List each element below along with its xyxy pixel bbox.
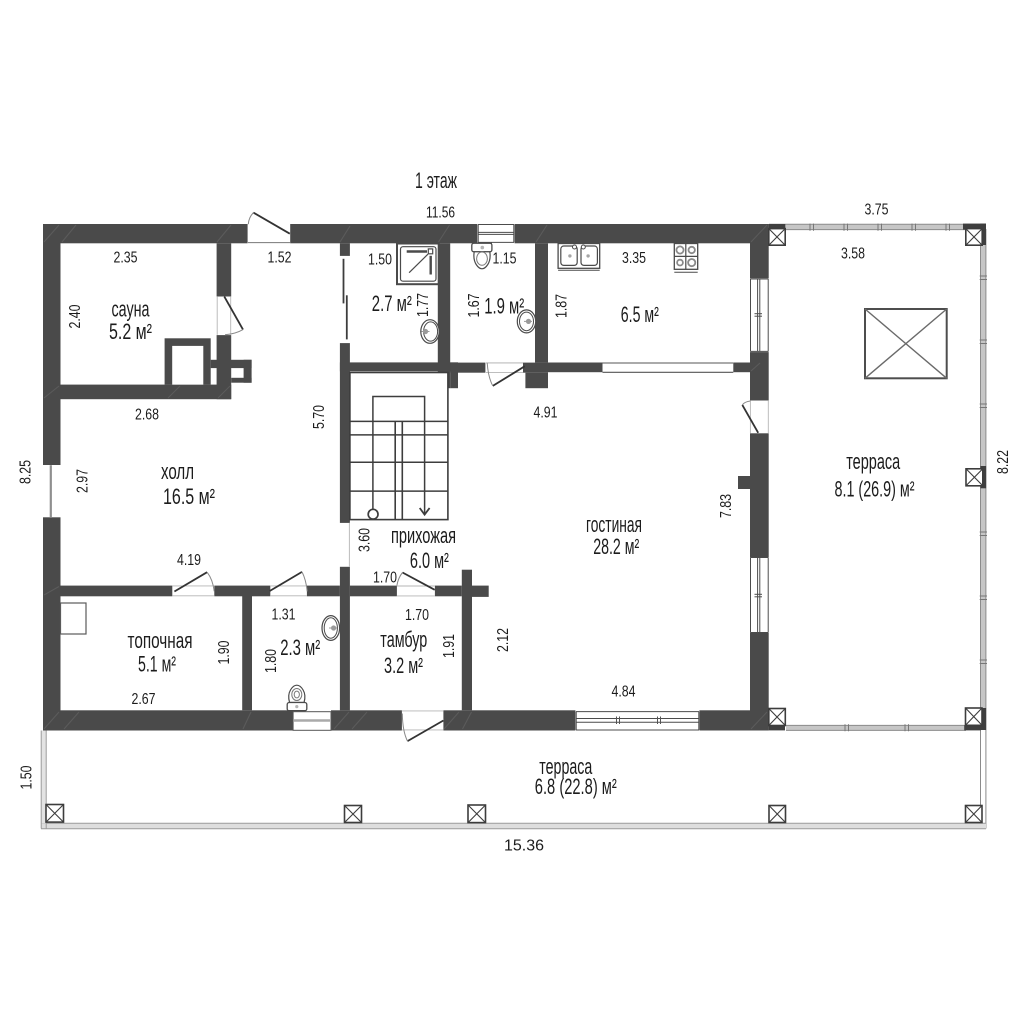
svg-text:3.2 м²: 3.2 м² [384,653,423,678]
svg-text:6.0 м²: 6.0 м² [410,548,449,573]
svg-text:1.77: 1.77 [415,293,432,317]
svg-text:1.50: 1.50 [368,252,392,269]
svg-text:прихожая: прихожая [391,523,456,548]
svg-text:1.90: 1.90 [216,640,233,664]
svg-text:2.67: 2.67 [132,691,156,708]
svg-text:8.1 (26.9) м²: 8.1 (26.9) м² [835,477,915,502]
svg-text:2.3 м²: 2.3 м² [280,635,320,660]
svg-text:4.19: 4.19 [177,552,201,569]
svg-text:5.70: 5.70 [311,405,328,429]
svg-text:4.91: 4.91 [534,405,558,422]
svg-text:2.35: 2.35 [114,250,138,267]
svg-text:топочная: топочная [128,628,193,653]
svg-text:тамбур: тамбур [380,627,427,652]
svg-text:4.84: 4.84 [612,684,636,701]
svg-text:2.97: 2.97 [75,469,92,493]
svg-text:1.70: 1.70 [373,570,397,587]
svg-text:8.22: 8.22 [995,450,1012,474]
svg-text:1.87: 1.87 [554,294,571,318]
svg-text:3.60: 3.60 [357,528,374,552]
svg-text:8.25: 8.25 [18,460,35,484]
svg-text:1.52: 1.52 [268,250,292,267]
svg-text:1.31: 1.31 [272,607,296,624]
svg-text:6.8 (22.8) м²: 6.8 (22.8) м² [535,774,617,799]
svg-text:2.40: 2.40 [67,304,84,328]
svg-text:3.75: 3.75 [865,202,889,219]
svg-text:2.68: 2.68 [135,407,159,424]
svg-text:1.91: 1.91 [441,634,458,658]
svg-text:холл: холл [161,459,194,484]
svg-text:16.5 м²: 16.5 м² [163,484,215,509]
svg-text:5.2 м²: 5.2 м² [109,319,152,344]
svg-text:терраса: терраса [846,449,900,474]
svg-text:1.67: 1.67 [466,293,483,317]
svg-text:1 этаж: 1 этаж [415,168,457,193]
svg-text:1.15: 1.15 [493,251,517,268]
svg-text:15.36: 15.36 [504,838,544,855]
svg-text:3.58: 3.58 [841,246,865,263]
svg-text:1.50: 1.50 [19,765,36,789]
svg-text:1.80: 1.80 [263,649,280,673]
svg-text:3.35: 3.35 [622,250,646,267]
svg-text:1.9 м²: 1.9 м² [484,294,524,319]
svg-text:сауна: сауна [112,297,150,322]
svg-text:2.7 м²: 2.7 м² [372,291,412,316]
svg-text:28.2 м²: 28.2 м² [593,534,639,559]
svg-text:7.83: 7.83 [718,494,735,518]
svg-text:1.70: 1.70 [405,607,429,624]
svg-text:5.1 м²: 5.1 м² [138,652,176,677]
svg-text:2.12: 2.12 [495,628,512,652]
svg-text:6.5 м²: 6.5 м² [621,302,659,327]
svg-text:11.56: 11.56 [426,205,455,222]
